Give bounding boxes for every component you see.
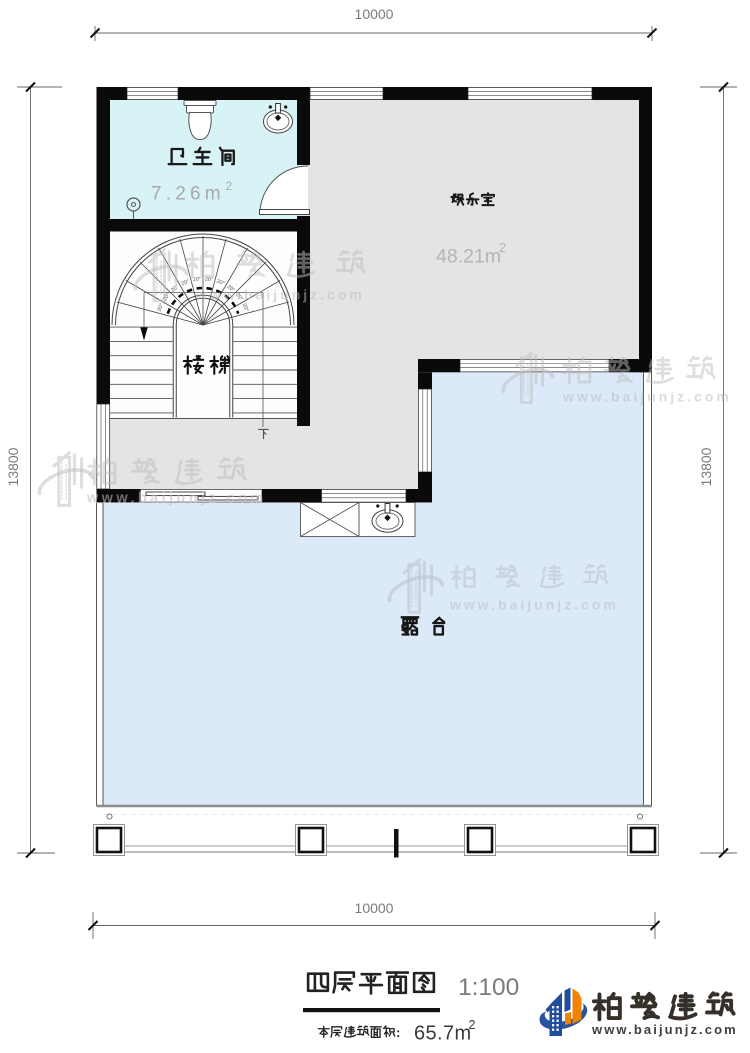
svg-text:www.baijunjz.com: www.baijunjz.com: [591, 1022, 738, 1037]
svg-text:2: 2: [469, 1018, 476, 1032]
svg-text:65.7m: 65.7m: [414, 1023, 472, 1045]
svg-text:13800: 13800: [698, 447, 714, 486]
svg-text:7.26m: 7.26m: [151, 184, 225, 205]
svg-text:2: 2: [226, 179, 233, 193]
svg-text:10000: 10000: [355, 900, 394, 916]
svg-text:10000: 10000: [355, 6, 394, 22]
svg-text::: :: [396, 1025, 400, 1040]
svg-text:20°: 20°: [205, 276, 214, 283]
svg-text:13800: 13800: [5, 447, 21, 486]
svg-text:www.baijunjz.com: www.baijunjz.com: [562, 389, 732, 405]
svg-text:www.baijunjz.com: www.baijunjz.com: [86, 491, 267, 507]
svg-text:48.21m: 48.21m: [436, 246, 501, 268]
svg-text:20°: 20°: [193, 276, 202, 283]
svg-text:1:100: 1:100: [458, 974, 519, 1001]
svg-text:www.baijunjz.com: www.baijunjz.com: [195, 287, 365, 303]
svg-text:www.baijunjz.com: www.baijunjz.com: [449, 597, 619, 613]
svg-text:2: 2: [499, 241, 506, 255]
